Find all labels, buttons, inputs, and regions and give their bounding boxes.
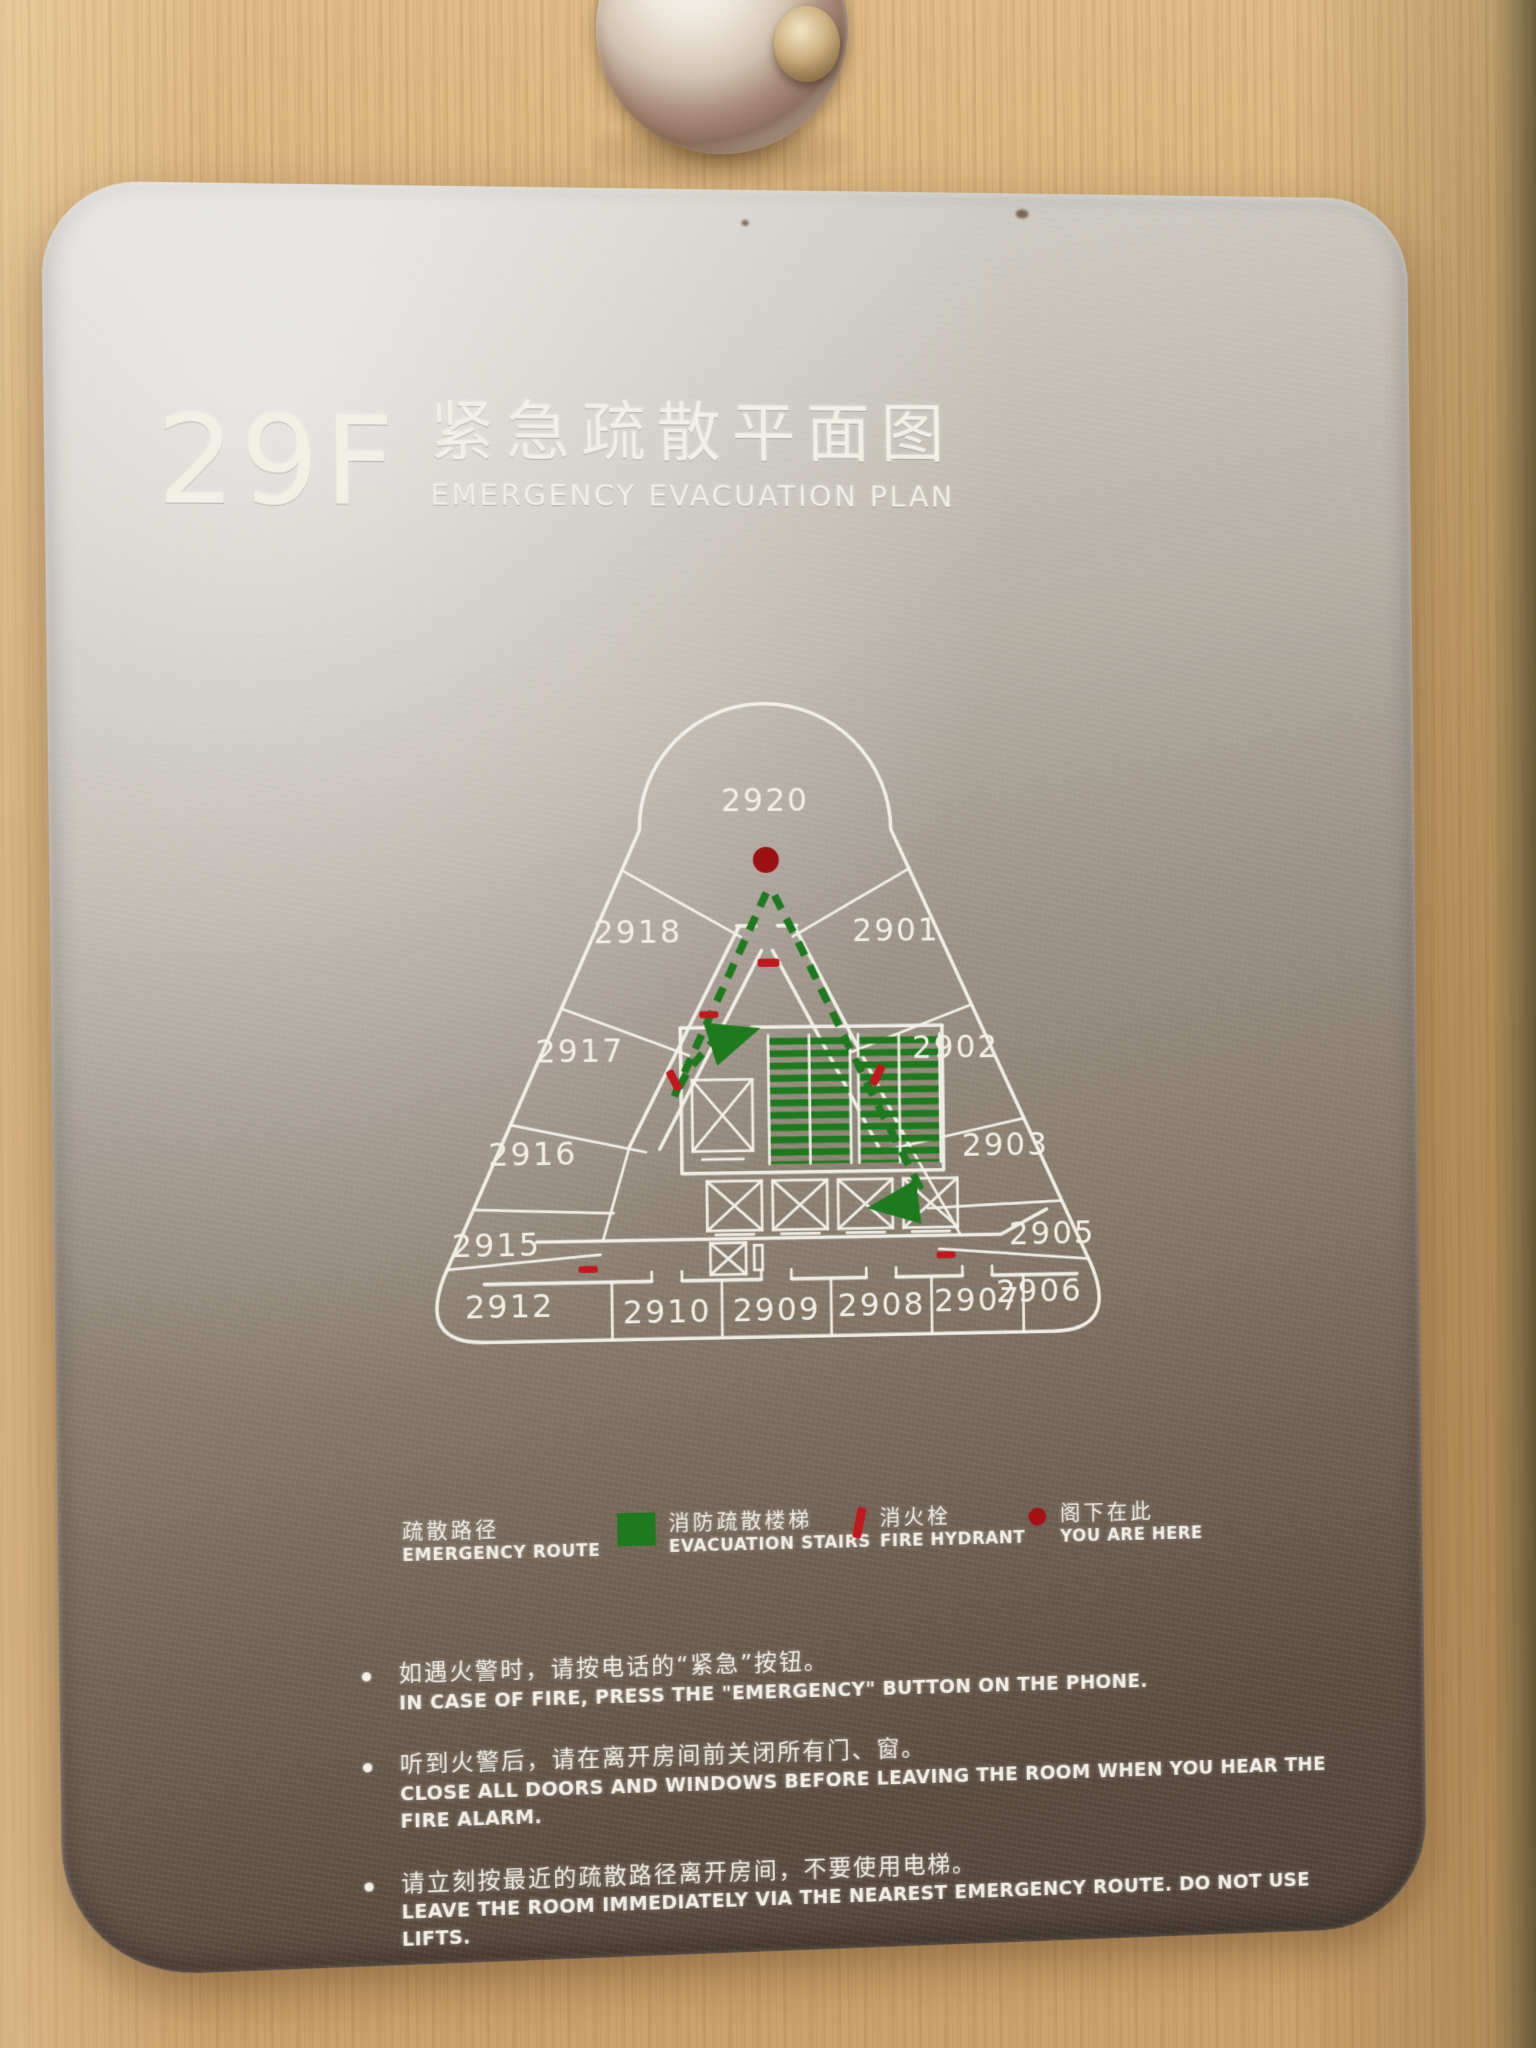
instruction-item: 听到火警后，请在离开房间前关闭所有门、窗。 CLOSE ALL DOORS AN… (363, 1721, 1374, 1837)
instructions-list: 如遇火警时，请按电话的“紧急”按钮。 IN CASE OF FIRE, PRES… (362, 1632, 1376, 1990)
elevator-bank-icons (707, 1178, 959, 1275)
sign-title-english: EMERGENCY EVACUATION PLAN (430, 477, 956, 514)
legend-item-you-are-here: 阁下在此 YOU ARE HERE (1028, 1497, 1203, 1549)
room-label: 2903 (962, 1125, 1049, 1164)
room-label: 2920 (721, 781, 810, 819)
stairs-legend-icon (617, 1512, 656, 1546)
instruction-item: 请立刻按最近的疏散路径离开房间，不要使用电梯。 LEAVE THE ROOM I… (364, 1836, 1375, 1955)
floor-number: 29F (155, 398, 400, 523)
legend-label-en: EVACUATION STAIRS (669, 1531, 871, 1558)
room-label: 2906 (996, 1271, 1083, 1310)
door-hardware-knob (774, 6, 840, 82)
room-label: 2910 (623, 1292, 712, 1331)
room-label: 2901 (852, 911, 940, 949)
elevator-icon-small (710, 1242, 762, 1274)
elevator-icon (692, 1079, 753, 1159)
elevator-icon (903, 1178, 958, 1232)
elevator-icon (773, 1180, 828, 1234)
legend-label-en: FIRE HYDRANT (880, 1527, 1025, 1553)
legend-item-evacuation-stairs: 消防疏散楼梯 EVACUATION STAIRS (617, 1505, 871, 1560)
hydrant-legend-icon (852, 1507, 867, 1539)
legend-label-en: YOU ARE HERE (1060, 1523, 1203, 1549)
you-are-here-dot (753, 847, 779, 873)
room-label: 2912 (465, 1286, 555, 1326)
scratch-mark (1016, 209, 1029, 218)
room-label: 2916 (488, 1134, 578, 1173)
fire-hydrant-icon (578, 1266, 597, 1273)
room-label: 2915 (451, 1226, 541, 1265)
elevator-icon (707, 1181, 762, 1235)
sign-header: 29F 紧急疏散平面图 EMERGENCY EVACUATION PLAN (155, 398, 956, 525)
floor-plan-diagram: 2920 2918 2901 2917 2902 2916 2903 2915 … (307, 668, 1218, 1446)
door-edge-shadow (1492, 0, 1536, 2048)
instruction-item: 如遇火警时，请按电话的“紧急”按钮。 IN CASE OF FIRE, PRES… (362, 1632, 1373, 1719)
room-label: 2917 (535, 1032, 625, 1071)
route-left (672, 893, 769, 1097)
legend-label-zh: 阁下在此 (1060, 1497, 1203, 1527)
you-are-here-legend-icon (1028, 1508, 1046, 1526)
evacuation-plan-plaque: 29F 紧急疏散平面图 EMERGENCY EVACUATION PLAN (41, 180, 1428, 1978)
fire-hydrant-icon (699, 1011, 718, 1018)
room-label: 2918 (593, 913, 682, 952)
legend-label-zh: 消火栓 (880, 1501, 1025, 1531)
room-label: 2908 (838, 1285, 926, 1324)
fire-hydrant-icon (758, 958, 780, 966)
room-label: 2905 (1009, 1214, 1096, 1253)
fire-hydrant-icon (937, 1251, 956, 1258)
photo-of-evacuation-sign: { "sign": { "floor_label": "29F", "title… (0, 0, 1536, 2048)
sign-title-chinese: 紧急疏散平面图 (429, 394, 955, 474)
room-label: 2902 (912, 1028, 1000, 1066)
legend-item-fire-hydrant: 消火栓 FIRE HYDRANT (855, 1501, 1026, 1553)
legend-label-en: EMERGENCY ROUTE (402, 1540, 600, 1567)
scratch-mark (742, 220, 749, 226)
legend-item-emergency-route: 疏散路径 EMERGENCY ROUTE (402, 1514, 601, 1568)
room-label: 2909 (732, 1290, 821, 1329)
